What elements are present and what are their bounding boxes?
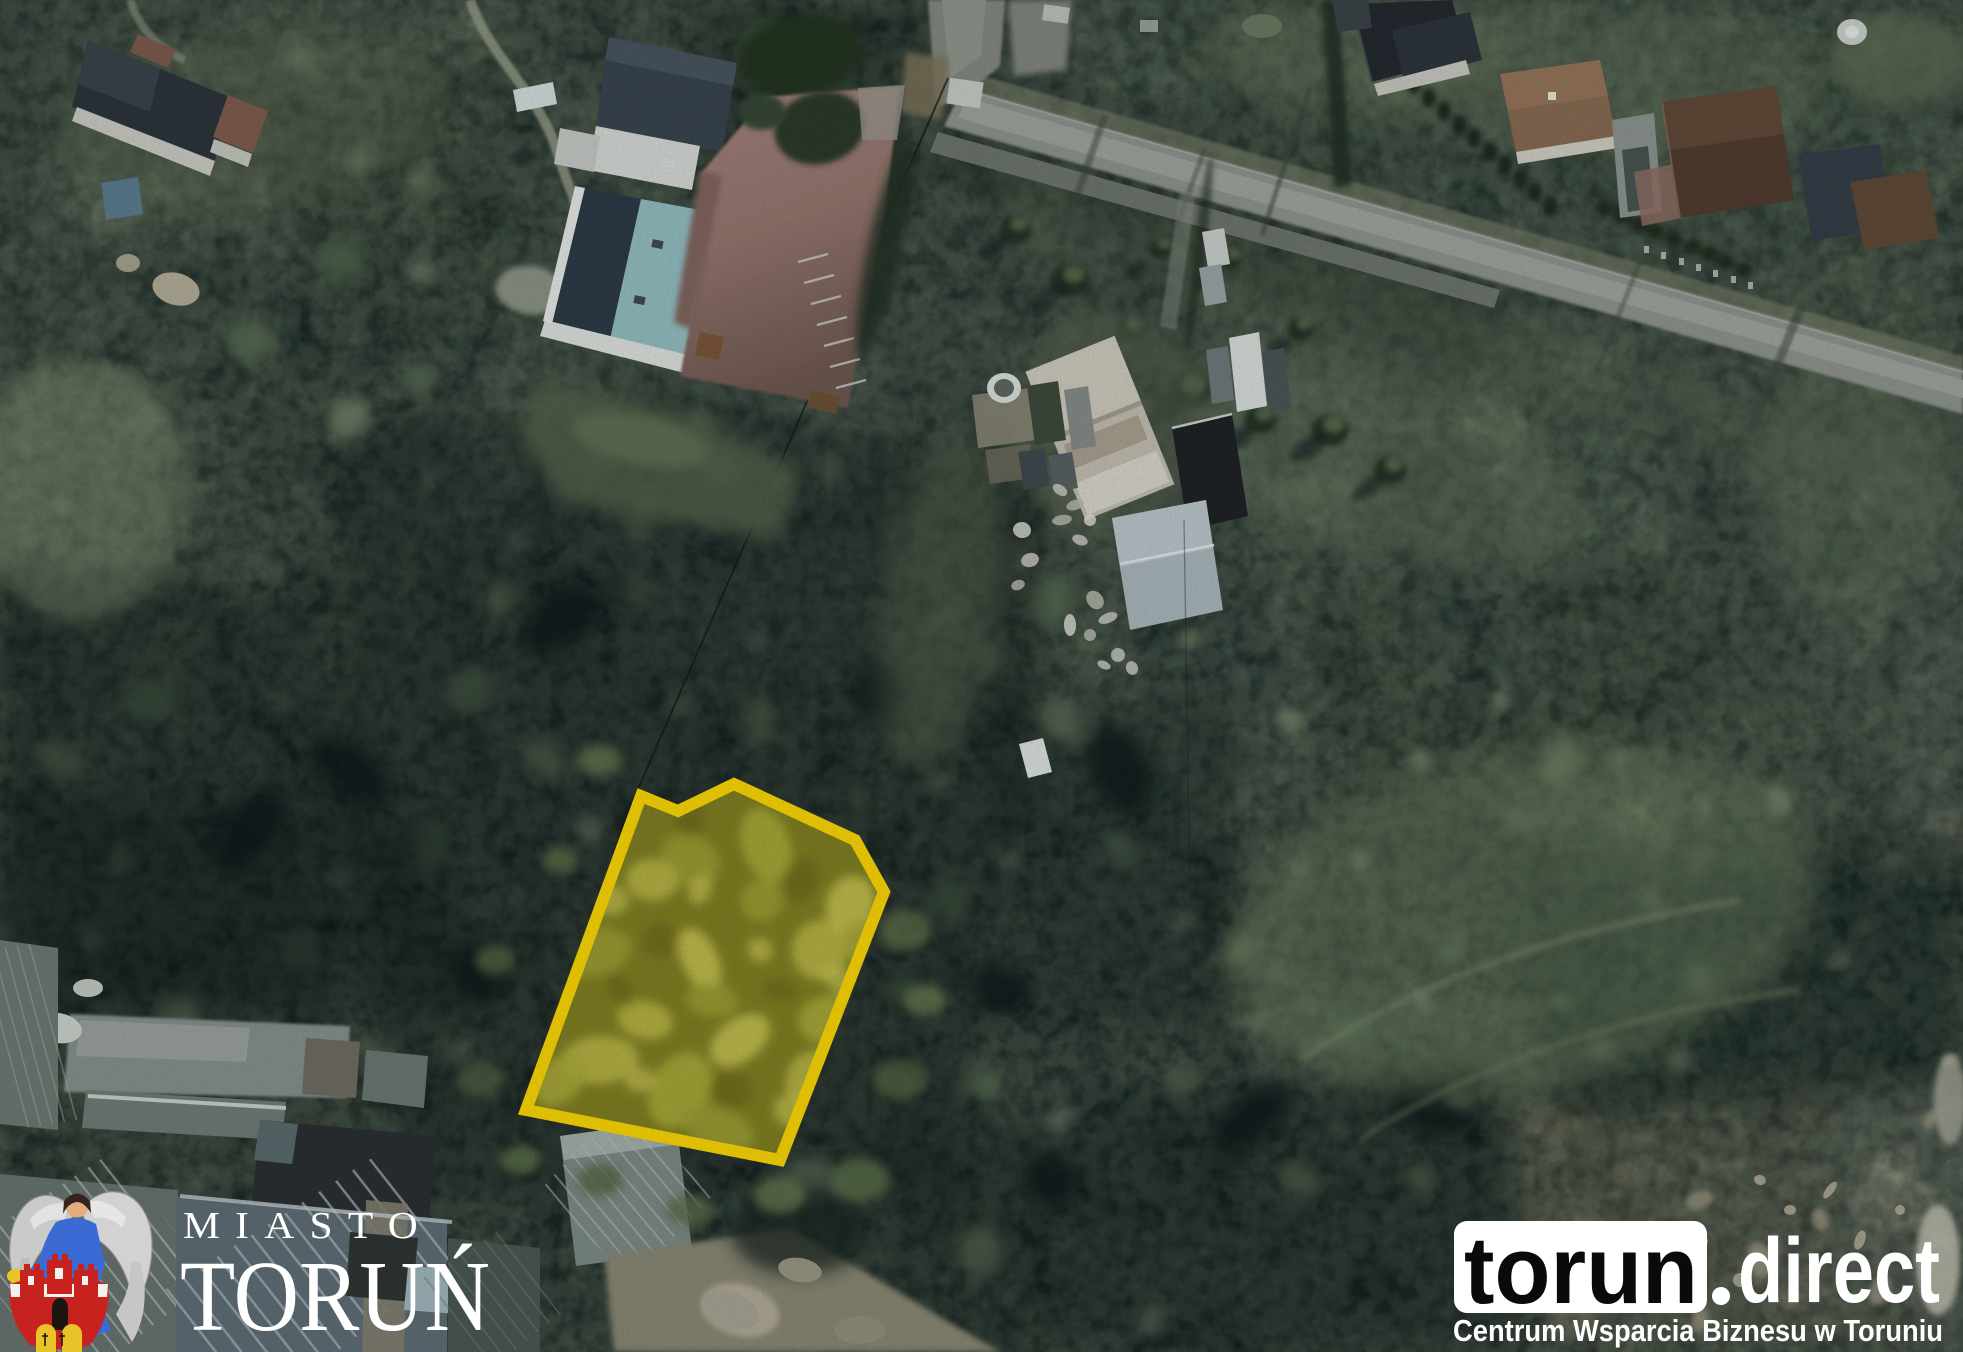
svg-text:Centrum Wsparcia Biznesu w Tor: Centrum Wsparcia Biznesu w Toruniu (1453, 1313, 1943, 1348)
svg-text:TORUŃ: TORUŃ (180, 1240, 490, 1352)
svg-text:torun: torun (1464, 1217, 1698, 1324)
svg-text:direct: direct (1738, 1220, 1940, 1322)
